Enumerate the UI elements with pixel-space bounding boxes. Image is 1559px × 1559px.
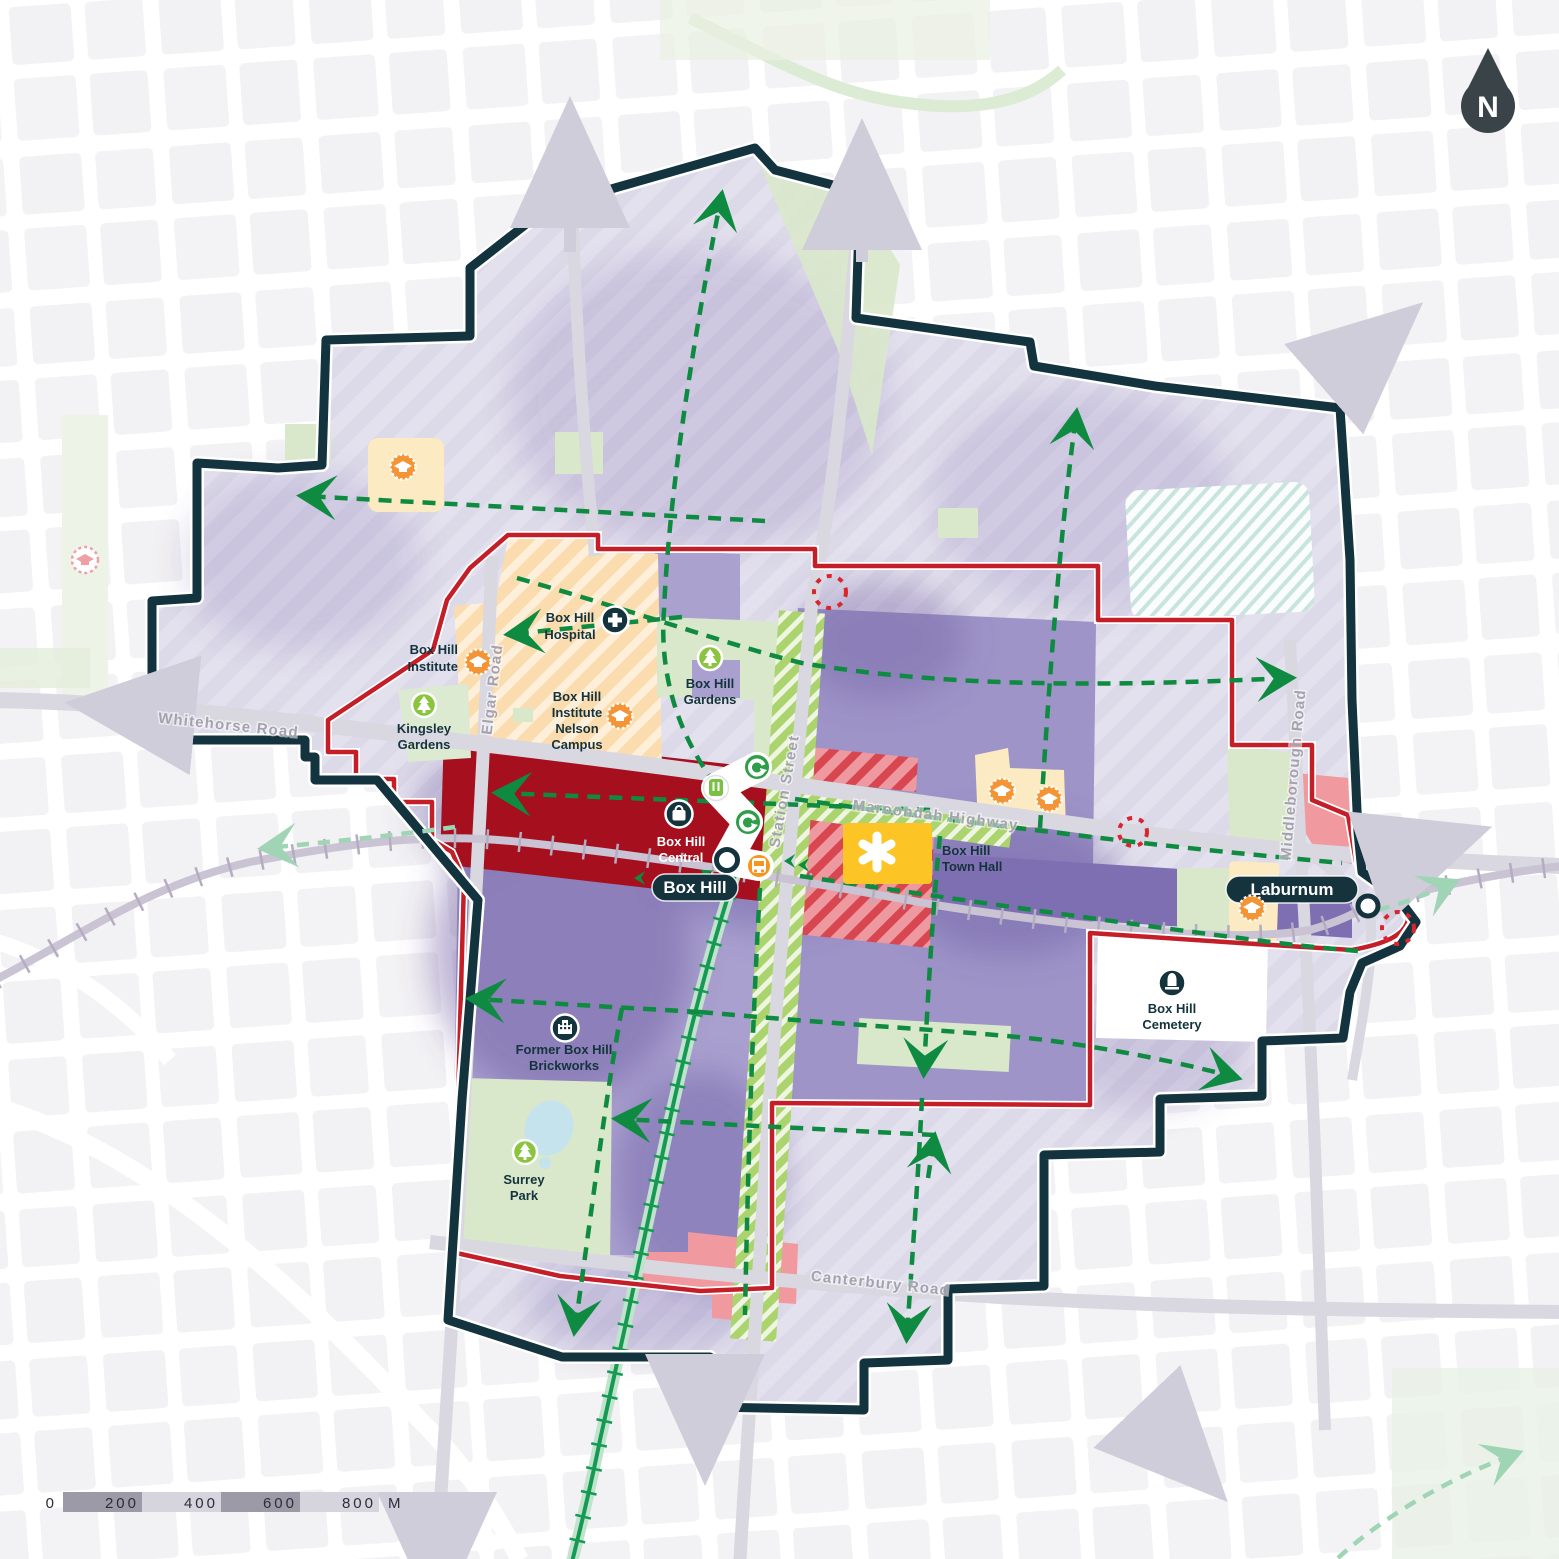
scale-800: 800 (342, 1495, 376, 1512)
station-label-box-hill: Box Hill (663, 878, 726, 897)
poi-label: Box Hill (1148, 1001, 1196, 1016)
poi-label: Box Hill (686, 676, 734, 691)
scale-600: 600 (263, 1495, 297, 1512)
station-box-hill: Box Hill (652, 874, 738, 901)
scale-400: 400 (184, 1495, 218, 1512)
poi-label: Box Hill (657, 834, 705, 849)
poi-label: Park (510, 1188, 539, 1203)
poi-label: Institute (552, 705, 603, 720)
poi-label: Gardens (398, 737, 451, 752)
education-icon-laburnum (1240, 896, 1265, 921)
scale-bar: 0 200 400 600 800 M (46, 1492, 404, 1512)
srl-loop-icon (735, 809, 762, 836)
outside-green-tint (1392, 1368, 1559, 1559)
education-icon-ne-1 (990, 779, 1015, 804)
poi-label: Brickworks (529, 1058, 599, 1073)
faded-education-marker-outside (72, 547, 98, 573)
poi-label: Surrey (503, 1172, 545, 1187)
zone-purple-north (655, 550, 740, 620)
scale-zero: 0 (46, 1495, 57, 1512)
poi-label: Box Hill (553, 689, 601, 704)
poi-label: Box Hill (546, 610, 594, 625)
poi-label: Cemetery (1142, 1017, 1202, 1032)
train-station-marker (717, 850, 738, 871)
poi-label: Box Hill (410, 642, 458, 657)
poi-label: Nelson (555, 721, 598, 736)
education-icon-yellow-nw (391, 455, 416, 480)
tree-icon (513, 1140, 537, 1164)
poi-label: Institute (407, 659, 458, 674)
poi-label: Gardens (684, 692, 737, 707)
poi-label: Campus (551, 737, 602, 752)
poi-label: Box Hill (942, 843, 990, 858)
education-icon-ne-2 (1037, 787, 1062, 812)
tree-icon (698, 646, 722, 670)
zone-teal-hatch (1125, 481, 1316, 620)
poi-label: Hospital (544, 627, 595, 642)
tram-icon (704, 776, 729, 801)
poi-label: Former Box Hill (516, 1042, 613, 1057)
station-label-laburnum: Laburnum (1250, 880, 1333, 899)
train-station-marker (1358, 896, 1378, 916)
scale-unit: M (388, 1495, 404, 1512)
box-hill-structure-plan-map: Box Hill Laburnum Box Hill Hospital Box … (0, 0, 1559, 1559)
poi-label: Town Hall (942, 859, 1002, 874)
north-letter: N (1477, 91, 1499, 124)
shopping-bag-icon (666, 801, 693, 828)
bus-icon (747, 854, 772, 879)
map-canvas: Box Hill Laburnum Box Hill Hospital Box … (0, 0, 1559, 1559)
srl-loop-icon (744, 754, 771, 781)
scale-200: 200 (105, 1495, 139, 1512)
poi-label: Central (659, 850, 704, 865)
hospital-cross-icon (602, 607, 629, 634)
poi-label: Kingsley (397, 721, 452, 736)
factory-icon (552, 1015, 579, 1042)
tree-icon (412, 693, 436, 717)
tombstone-icon (1159, 970, 1186, 997)
education-icon (608, 704, 633, 729)
